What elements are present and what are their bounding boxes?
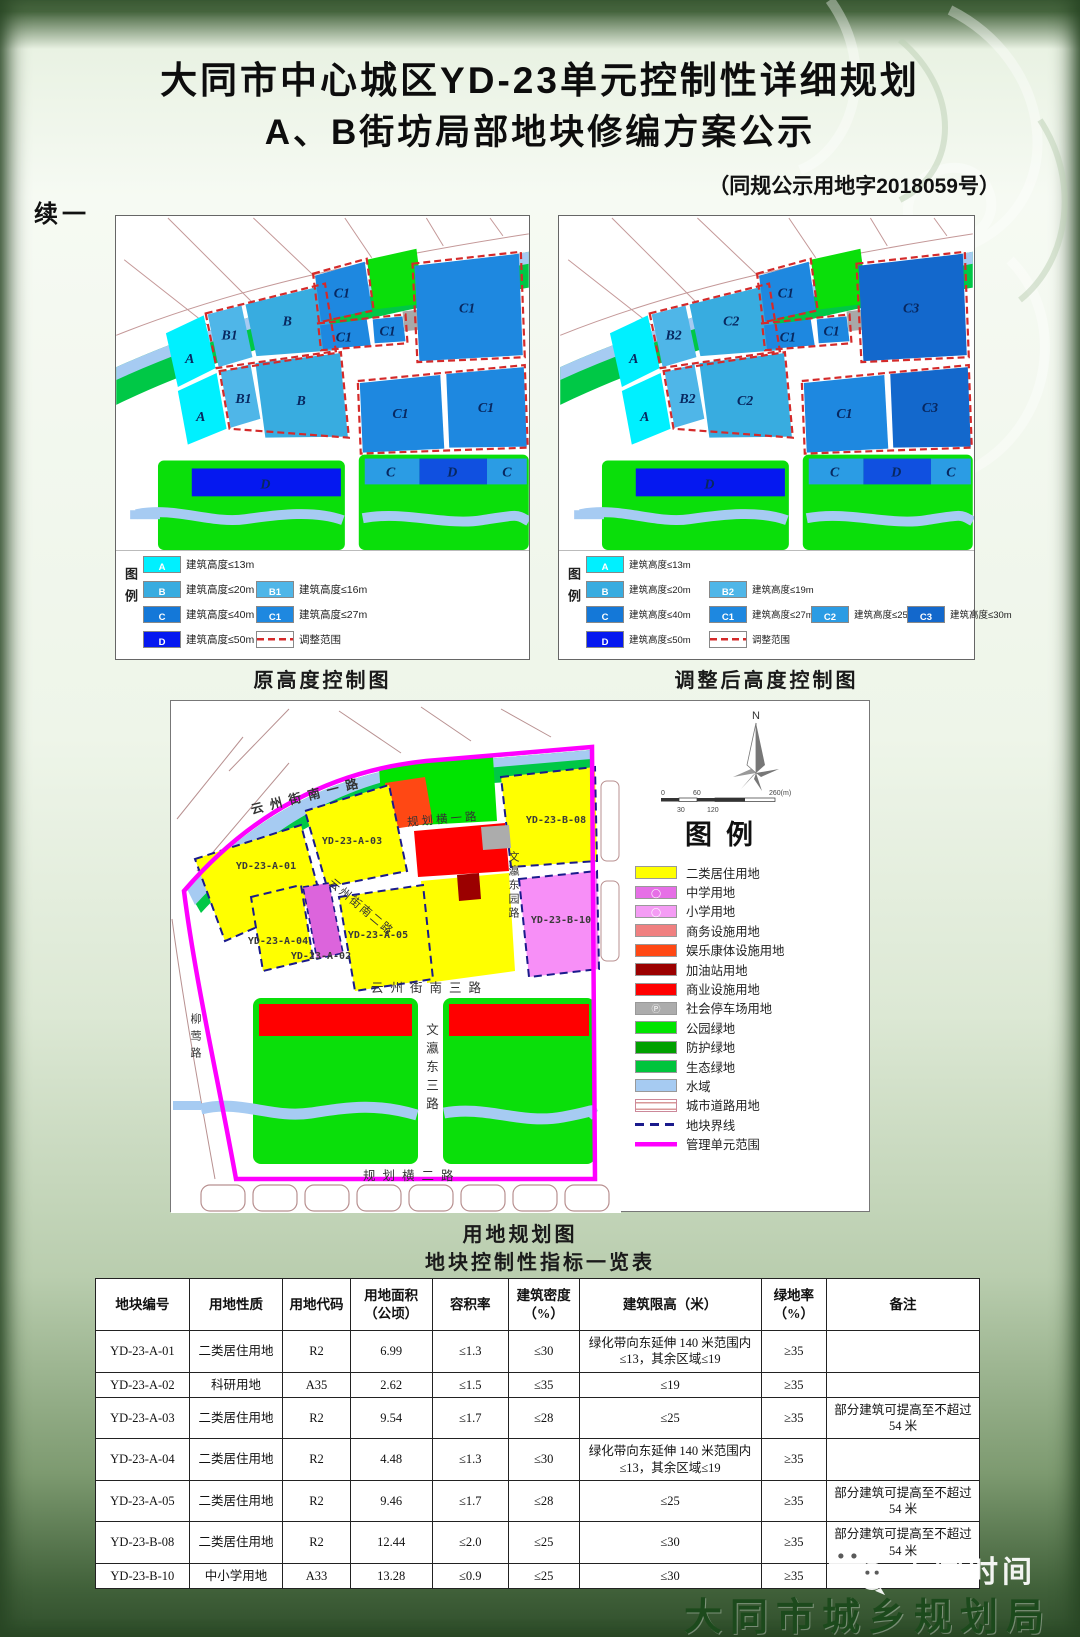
parcel-label: A — [184, 352, 194, 367]
legend-label: 城市道路用地 — [686, 1096, 760, 1114]
table-row: YD-23-A-05 二类居住用地 R2 9.46 ≤1.7 ≤28 ≤25 ≥… — [96, 1480, 980, 1522]
legend-label: 建筑高度≤20m — [629, 582, 691, 596]
legend-label: 生态绿地 — [686, 1058, 735, 1076]
table-header-cell: 地块编号 — [96, 1279, 190, 1331]
table-header-cell: 用地代码 — [283, 1279, 350, 1331]
cell-parcel-id: YD-23-B-10 — [96, 1563, 190, 1588]
parcel-label: YD-23-B-10 — [531, 915, 591, 926]
legend-label: 建筑高度≤40m — [186, 607, 254, 622]
table-header-row: 地块编号用地性质用地代码用地面积 （公顷）容积率建筑密度 （%）建筑限高（米）绿… — [96, 1279, 980, 1331]
legend-item: B1建筑高度≤16m — [256, 580, 367, 598]
legend-item: D建筑高度≤50m — [143, 630, 254, 648]
cell-green-rate: ≥35 — [761, 1397, 826, 1439]
cell-land-code: R2 — [283, 1439, 350, 1481]
notice-page: 大同市中心城区YD-23单元控制性详细规划 A、B街坊局部地块修编方案公示 （同… — [0, 0, 1080, 1637]
cell-far: ≤1.3 — [432, 1439, 508, 1481]
parcel-label: B — [295, 394, 305, 409]
table-row: YD-23-A-01 二类居住用地 R2 6.99 ≤1.3 ≤30 绿化带向东… — [96, 1331, 980, 1373]
legend-swatch — [635, 866, 677, 879]
legend-title: 图例 — [564, 567, 583, 611]
cell-height-limit: ≤25 — [579, 1480, 761, 1522]
cell-area: 9.46 — [350, 1480, 432, 1522]
cell-land-code: R2 — [283, 1480, 350, 1522]
legend-swatch — [635, 905, 677, 918]
legend-swatch: B — [143, 581, 181, 598]
cell-far: ≤2.0 — [432, 1522, 508, 1564]
legend-swatch: C — [143, 606, 181, 623]
legend-swatch — [635, 886, 677, 899]
adjust-range-swatch — [709, 631, 747, 648]
landuse-map-caption: 用地规划图 — [170, 1218, 870, 1247]
table-header-cell: 用地性质 — [189, 1279, 283, 1331]
legend-label: 建筑高度≤50m — [186, 632, 254, 647]
table-header-cell: 绿地率 （%） — [761, 1279, 826, 1331]
parcel-label: C — [502, 465, 512, 480]
parcel-label: C3 — [903, 301, 919, 316]
table-row: YD-23-A-03 二类居住用地 R2 9.54 ≤1.7 ≤28 ≤25 ≥… — [96, 1397, 980, 1439]
cell-land-nature: 中小学用地 — [189, 1563, 283, 1588]
cell-height-limit: 绿化带向东延伸 140 米范围内≤13，其余区域≤19 — [579, 1439, 761, 1481]
legend-swatch — [635, 1060, 677, 1073]
parcel-label: C1 — [478, 401, 494, 416]
legend-item: C2建筑高度≤25m — [811, 605, 916, 623]
cell-height-limit: ≤30 — [579, 1522, 761, 1564]
svg-text:30: 30 — [677, 807, 685, 813]
legend-label: 防护绿地 — [686, 1038, 735, 1056]
cell-green-rate: ≥35 — [761, 1522, 826, 1564]
cell-far: ≤1.5 — [432, 1372, 508, 1397]
legend-swatch: B2 — [709, 581, 747, 598]
cell-land-nature: 二类居住用地 — [189, 1331, 283, 1373]
parcel-label: C — [946, 465, 956, 480]
cell-parcel-id: YD-23-A-03 — [96, 1397, 190, 1439]
parcel-label: C1 — [780, 330, 796, 345]
parcel-label: YD-23-A-01 — [236, 861, 296, 872]
cell-land-code: A35 — [283, 1372, 350, 1397]
legend-item: D建筑高度≤50m — [586, 630, 691, 648]
legend-swatch: B1 — [256, 581, 294, 598]
legend-swatch — [635, 1138, 677, 1151]
table-header-cell: 建筑密度 （%） — [508, 1279, 579, 1331]
svg-text:60: 60 — [693, 790, 701, 797]
cell-height-limit: ≤19 — [579, 1372, 761, 1397]
legend-swatch — [635, 1099, 677, 1112]
parcel-label: YD-23-A-03 — [322, 836, 382, 847]
document-number: （同规公示用地字2018059号） — [708, 170, 1000, 200]
landuse-legend: N 0 60 260(m) 30 120 — [623, 701, 869, 1213]
adjusted-height-map-panel: A B2 C2 A B2 C2 C1 C1 C1 C3 C1 C3 D C D … — [558, 215, 975, 660]
parcel-label: YD-23-A-04 — [248, 936, 308, 947]
cell-note — [827, 1372, 980, 1397]
legend-label: 商业设施用地 — [686, 980, 760, 998]
legend-label: 小学用地 — [686, 902, 735, 920]
parcel-label: C1 — [836, 407, 852, 422]
legend-label: 管理单元范围 — [686, 1135, 760, 1153]
cell-density: ≤28 — [508, 1397, 579, 1439]
legend-item: 公园绿地 — [635, 1018, 784, 1037]
legend-item: 商务设施用地 — [635, 921, 784, 940]
cell-height-limit: ≤30 — [579, 1563, 761, 1588]
legend-swatch: A — [143, 556, 181, 573]
cell-green-rate: ≥35 — [761, 1563, 826, 1588]
cell-green-rate: ≥35 — [761, 1480, 826, 1522]
adjust-range-swatch — [256, 631, 294, 648]
parcel-label: D — [259, 477, 270, 492]
legend-item: 二类居住用地 — [635, 863, 784, 882]
scale-bar: 0 60 260(m) 30 120 — [641, 787, 811, 813]
original-height-map-panel: A B1 B A B1 B C1 C1 C1 C1 C1 C1 D C D C … — [115, 215, 530, 660]
parcel-label: C1 — [336, 330, 352, 345]
legend-swatch: C1 — [256, 606, 294, 623]
cell-area: 6.99 — [350, 1331, 432, 1373]
parcel-label: A — [639, 410, 649, 425]
cell-far: ≤0.9 — [432, 1563, 508, 1588]
legend-item: 商业设施用地 — [635, 979, 784, 998]
legend-swatch — [635, 1041, 677, 1054]
legend-label: 建筑高度≤20m — [186, 582, 254, 597]
legend-swatch — [635, 1021, 677, 1034]
legend-swatch — [635, 1118, 677, 1131]
cell-far: ≤1.3 — [432, 1331, 508, 1373]
legend-item: 娱乐康体设施用地 — [635, 941, 784, 960]
legend-label: 娱乐康体设施用地 — [686, 941, 784, 959]
original-height-map-caption: 原高度控制图 — [115, 664, 530, 693]
legend-item: 城市道路用地 — [635, 1096, 784, 1115]
parcel-label: B — [282, 314, 292, 329]
parcel-label: C1 — [334, 287, 350, 302]
height-legend: 图例 A建筑高度≤13m B建筑高度≤20m B2建筑高度≤19m C建筑高度≤… — [559, 550, 974, 658]
legend-item: B2建筑高度≤19m — [709, 580, 814, 598]
legend-item: B建筑高度≤20m — [143, 580, 254, 598]
table-caption: 地块控制性指标一览表 — [0, 1246, 1080, 1275]
legend-item: 加油站用地 — [635, 960, 784, 979]
legend-label: 建筑高度≤13m — [629, 557, 691, 571]
parcel-label: C2 — [723, 314, 739, 329]
legend-label: 建筑高度≤30m — [950, 607, 1012, 621]
parcel-label: YD-23-A-02 — [291, 951, 351, 962]
svg-text:N: N — [752, 710, 760, 722]
parcel-label: B2 — [664, 328, 681, 343]
legend-label: 中学用地 — [686, 883, 735, 901]
south-blocks — [130, 455, 529, 550]
legend-swatch: C — [586, 606, 624, 623]
legend-label: 建筑高度≤19m — [752, 582, 814, 596]
parcel-label: C1 — [379, 324, 395, 339]
cell-density: ≤35 — [508, 1372, 579, 1397]
cell-parcel-id: YD-23-A-05 — [96, 1480, 190, 1522]
adjusted-height-map-caption: 调整后高度控制图 — [558, 664, 975, 693]
cell-area: 12.44 — [350, 1522, 432, 1564]
legend-item: 生态绿地 — [635, 1057, 784, 1076]
cell-green-rate: ≥35 — [761, 1439, 826, 1481]
cell-parcel-id: YD-23-B-08 — [96, 1522, 190, 1564]
table-header-cell: 备注 — [827, 1279, 980, 1331]
cell-land-code: R2 — [283, 1331, 350, 1373]
cell-parcel-id: YD-23-A-01 — [96, 1331, 190, 1373]
parcel-label: A — [628, 352, 638, 367]
legend-label: 水域 — [686, 1077, 711, 1095]
cell-far: ≤1.7 — [432, 1397, 508, 1439]
cell-land-code: R2 — [283, 1522, 350, 1564]
legend-item: C建筑高度≤40m — [586, 605, 691, 623]
parcel-label: C — [830, 465, 840, 480]
legend-list: 二类居住用地 中学用地 小学用地 商务设施用地 — [635, 863, 784, 1154]
cell-density: ≤25 — [508, 1563, 579, 1588]
cell-note: 部分建筑可提高至不超过 54 米 — [827, 1397, 980, 1439]
legend-item: 调整范围 — [709, 630, 790, 648]
legend-item: 地块界线 — [635, 1115, 784, 1134]
legend-label: 加油站用地 — [686, 961, 748, 979]
legend-item: A建筑高度≤13m — [586, 555, 691, 573]
road-label: 文瀛东园路 — [505, 851, 521, 921]
legend-item: C3建筑高度≤30m — [907, 605, 1012, 623]
cell-green-rate: ≥35 — [761, 1331, 826, 1373]
cell-density: ≤28 — [508, 1480, 579, 1522]
legend-swatch: C2 — [811, 606, 849, 623]
road-label: 柳莺路 — [187, 1013, 203, 1064]
legend-label: 调整范围 — [752, 632, 790, 646]
parcel-label: C1 — [459, 301, 475, 316]
legend-item: 中学用地 — [635, 882, 784, 901]
cell-density: ≤25 — [508, 1522, 579, 1564]
road-label: 规划横二路 — [363, 1165, 461, 1184]
cell-land-nature: 二类居住用地 — [189, 1522, 283, 1564]
legend-label: 建筑高度≤13m — [186, 557, 254, 572]
page-title-line1: 大同市中心城区YD-23单元控制性详细规划 — [0, 50, 1080, 104]
legend-item: C建筑高度≤40m — [143, 605, 254, 623]
legend-item: 社会停车场用地 — [635, 999, 784, 1018]
parcel-label: B1 — [234, 392, 251, 407]
parcel-label: C1 — [778, 287, 794, 302]
legend-item: 防护绿地 — [635, 1038, 784, 1057]
parcel-label: A — [195, 410, 205, 425]
parcel-label: C2 — [737, 394, 753, 409]
parcel-label: C — [386, 465, 396, 480]
legend-item: B建筑高度≤20m — [586, 580, 691, 598]
cell-area: 4.48 — [350, 1439, 432, 1481]
adjusted-height-map: A B2 C2 A B2 C2 C1 C1 C1 C3 C1 C3 D C D … — [559, 216, 974, 550]
cell-parcel-id: YD-23-A-02 — [96, 1372, 190, 1397]
continuation-label: 续一 — [34, 194, 90, 229]
legend-label: 社会停车场用地 — [686, 999, 772, 1017]
parcel-label: D — [703, 477, 714, 492]
cell-density: ≤30 — [508, 1439, 579, 1481]
cell-parcel-id: YD-23-A-04 — [96, 1439, 190, 1481]
table-header-cell: 容积率 — [432, 1279, 508, 1331]
cell-area: 9.54 — [350, 1397, 432, 1439]
watermark-text: 大同时间 — [900, 1547, 1036, 1591]
cell-note — [827, 1439, 980, 1481]
legend-swatch: C3 — [907, 606, 945, 623]
svg-text:0: 0 — [661, 790, 665, 797]
table-header-cell: 用地面积 （公顷） — [350, 1279, 432, 1331]
legend-item: C1建筑高度≤27m — [256, 605, 367, 623]
legend-title: 图例 — [685, 813, 767, 852]
cell-note: 部分建筑可提高至不超过 54 米 — [827, 1480, 980, 1522]
legend-swatch: D — [586, 631, 624, 648]
parcel-label: C3 — [922, 401, 938, 416]
legend-swatch — [635, 983, 677, 996]
legend-swatch — [635, 944, 677, 957]
south-blocks — [574, 455, 973, 550]
cell-far: ≤1.7 — [432, 1480, 508, 1522]
cell-land-nature: 二类居住用地 — [189, 1397, 283, 1439]
height-legend: 图例 A建筑高度≤13m B建筑高度≤20m B1建筑高度≤16m C建筑高度≤… — [116, 550, 529, 658]
legend-label: 二类居住用地 — [686, 864, 760, 882]
legend-label: 建筑高度≤40m — [629, 607, 691, 621]
legend-label: 建筑高度≤50m — [629, 632, 691, 646]
parcel-label: B1 — [220, 328, 237, 343]
page-title-line2: A、B街坊局部地块修编方案公示 — [0, 104, 1080, 155]
table-header-cell: 建筑限高（米） — [579, 1279, 761, 1331]
road-label: 文瀛东三路 — [422, 1023, 441, 1116]
road-label: 云州街南三路 — [371, 977, 488, 996]
parcel-label: B2 — [678, 392, 695, 407]
legend-item: 调整范围 — [256, 630, 341, 648]
cell-land-code: R2 — [283, 1397, 350, 1439]
legend-swatch: B — [586, 581, 624, 598]
cell-density: ≤30 — [508, 1331, 579, 1373]
landuse-map-panel: YD-23-A-01 YD-23-A-03 YD-23-B-08 YD-23-B… — [170, 700, 870, 1212]
legend-label: 商务设施用地 — [686, 922, 760, 940]
legend-swatch — [635, 963, 677, 976]
cell-area: 2.62 — [350, 1372, 432, 1397]
svg-text:260(m): 260(m) — [769, 790, 791, 797]
cell-land-nature: 二类居住用地 — [189, 1480, 283, 1522]
parcel-label: D — [446, 465, 457, 480]
legend-label: 建筑高度≤16m — [299, 582, 367, 597]
cell-area: 13.28 — [350, 1563, 432, 1588]
legend-swatch — [635, 1079, 677, 1092]
legend-label: 调整范围 — [299, 632, 341, 647]
legend-label: 建筑高度≤27m — [752, 607, 814, 621]
legend-label: 建筑高度≤27m — [299, 607, 367, 622]
legend-item: 管理单元范围 — [635, 1134, 784, 1153]
legend-item: 水域 — [635, 1076, 784, 1095]
cell-height-limit: ≤25 — [579, 1397, 761, 1439]
legend-swatch — [635, 1002, 677, 1015]
legend-swatch: A — [586, 556, 624, 573]
table-row: YD-23-A-04 二类居住用地 R2 4.48 ≤1.3 ≤30 绿化带向东… — [96, 1439, 980, 1481]
table-row: YD-23-A-02 科研用地 A35 2.62 ≤1.5 ≤35 ≤19 ≥3… — [96, 1372, 980, 1397]
cell-green-rate: ≥35 — [761, 1372, 826, 1397]
cell-note — [827, 1331, 980, 1373]
legend-swatch: D — [143, 631, 181, 648]
cell-land-nature: 科研用地 — [189, 1372, 283, 1397]
parcel-label: C1 — [392, 407, 408, 422]
legend-label: 公园绿地 — [686, 1019, 735, 1037]
landuse-map: YD-23-A-01 YD-23-A-03 YD-23-B-08 YD-23-B… — [171, 701, 621, 1213]
legend-item: A建筑高度≤13m — [143, 555, 254, 573]
legend-title: 图例 — [121, 567, 140, 611]
cell-height-limit: 绿化带向东延伸 140 米范围内≤13，其余区域≤19 — [579, 1331, 761, 1373]
original-height-map: A B1 B A B1 B C1 C1 C1 C1 C1 C1 D C D C — [116, 216, 529, 550]
legend-swatch: C1 — [709, 606, 747, 623]
legend-label: 地块界线 — [686, 1116, 735, 1134]
parcel-label: D — [890, 465, 901, 480]
legend-item: 小学用地 — [635, 902, 784, 921]
agency-name: 大同市城乡规划局 — [684, 1586, 1052, 1637]
legend-swatch — [635, 924, 677, 937]
parcel-label: C1 — [823, 324, 839, 339]
cell-land-code: A33 — [283, 1563, 350, 1588]
legend-item: C1建筑高度≤27m — [709, 605, 814, 623]
parcel-label: YD-23-B-08 — [526, 815, 586, 826]
cell-land-nature: 二类居住用地 — [189, 1439, 283, 1481]
